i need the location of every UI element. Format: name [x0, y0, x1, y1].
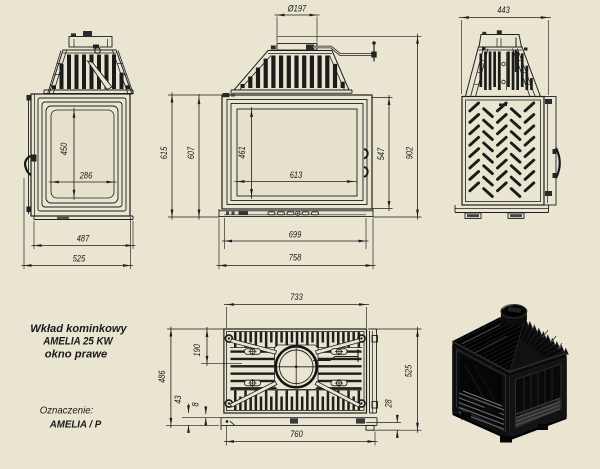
svg-text:190: 190: [192, 344, 203, 357]
svg-text:AMELIA / P: AMELIA / P: [49, 419, 102, 431]
svg-text:450: 450: [59, 142, 70, 155]
svg-text:AMELIA 25 KW: AMELIA 25 KW: [42, 336, 114, 348]
svg-text:Wkład kominkowy: Wkład kominkowy: [30, 323, 127, 335]
svg-text:902: 902: [405, 146, 416, 159]
svg-text:760: 760: [290, 429, 303, 440]
svg-text:8: 8: [191, 402, 202, 407]
svg-text:Ø197: Ø197: [287, 4, 307, 15]
svg-text:28: 28: [384, 399, 395, 409]
svg-text:Oznaczenie:: Oznaczenie:: [40, 405, 94, 417]
svg-text:758: 758: [289, 253, 302, 264]
svg-text:699: 699: [289, 230, 302, 241]
svg-text:525: 525: [404, 364, 415, 377]
svg-text:547: 547: [376, 147, 387, 160]
svg-text:733: 733: [290, 292, 303, 303]
svg-text:487: 487: [77, 234, 90, 245]
svg-text:607: 607: [186, 146, 197, 159]
svg-text:613: 613: [290, 170, 303, 181]
svg-text:486: 486: [157, 370, 168, 383]
svg-text:461: 461: [237, 146, 248, 158]
svg-text:43: 43: [173, 395, 184, 404]
svg-text:443: 443: [497, 5, 510, 16]
svg-text:286: 286: [79, 171, 93, 182]
svg-text:615: 615: [159, 146, 170, 159]
svg-text:525: 525: [73, 254, 86, 265]
svg-text:okno prawe: okno prawe: [45, 349, 108, 361]
